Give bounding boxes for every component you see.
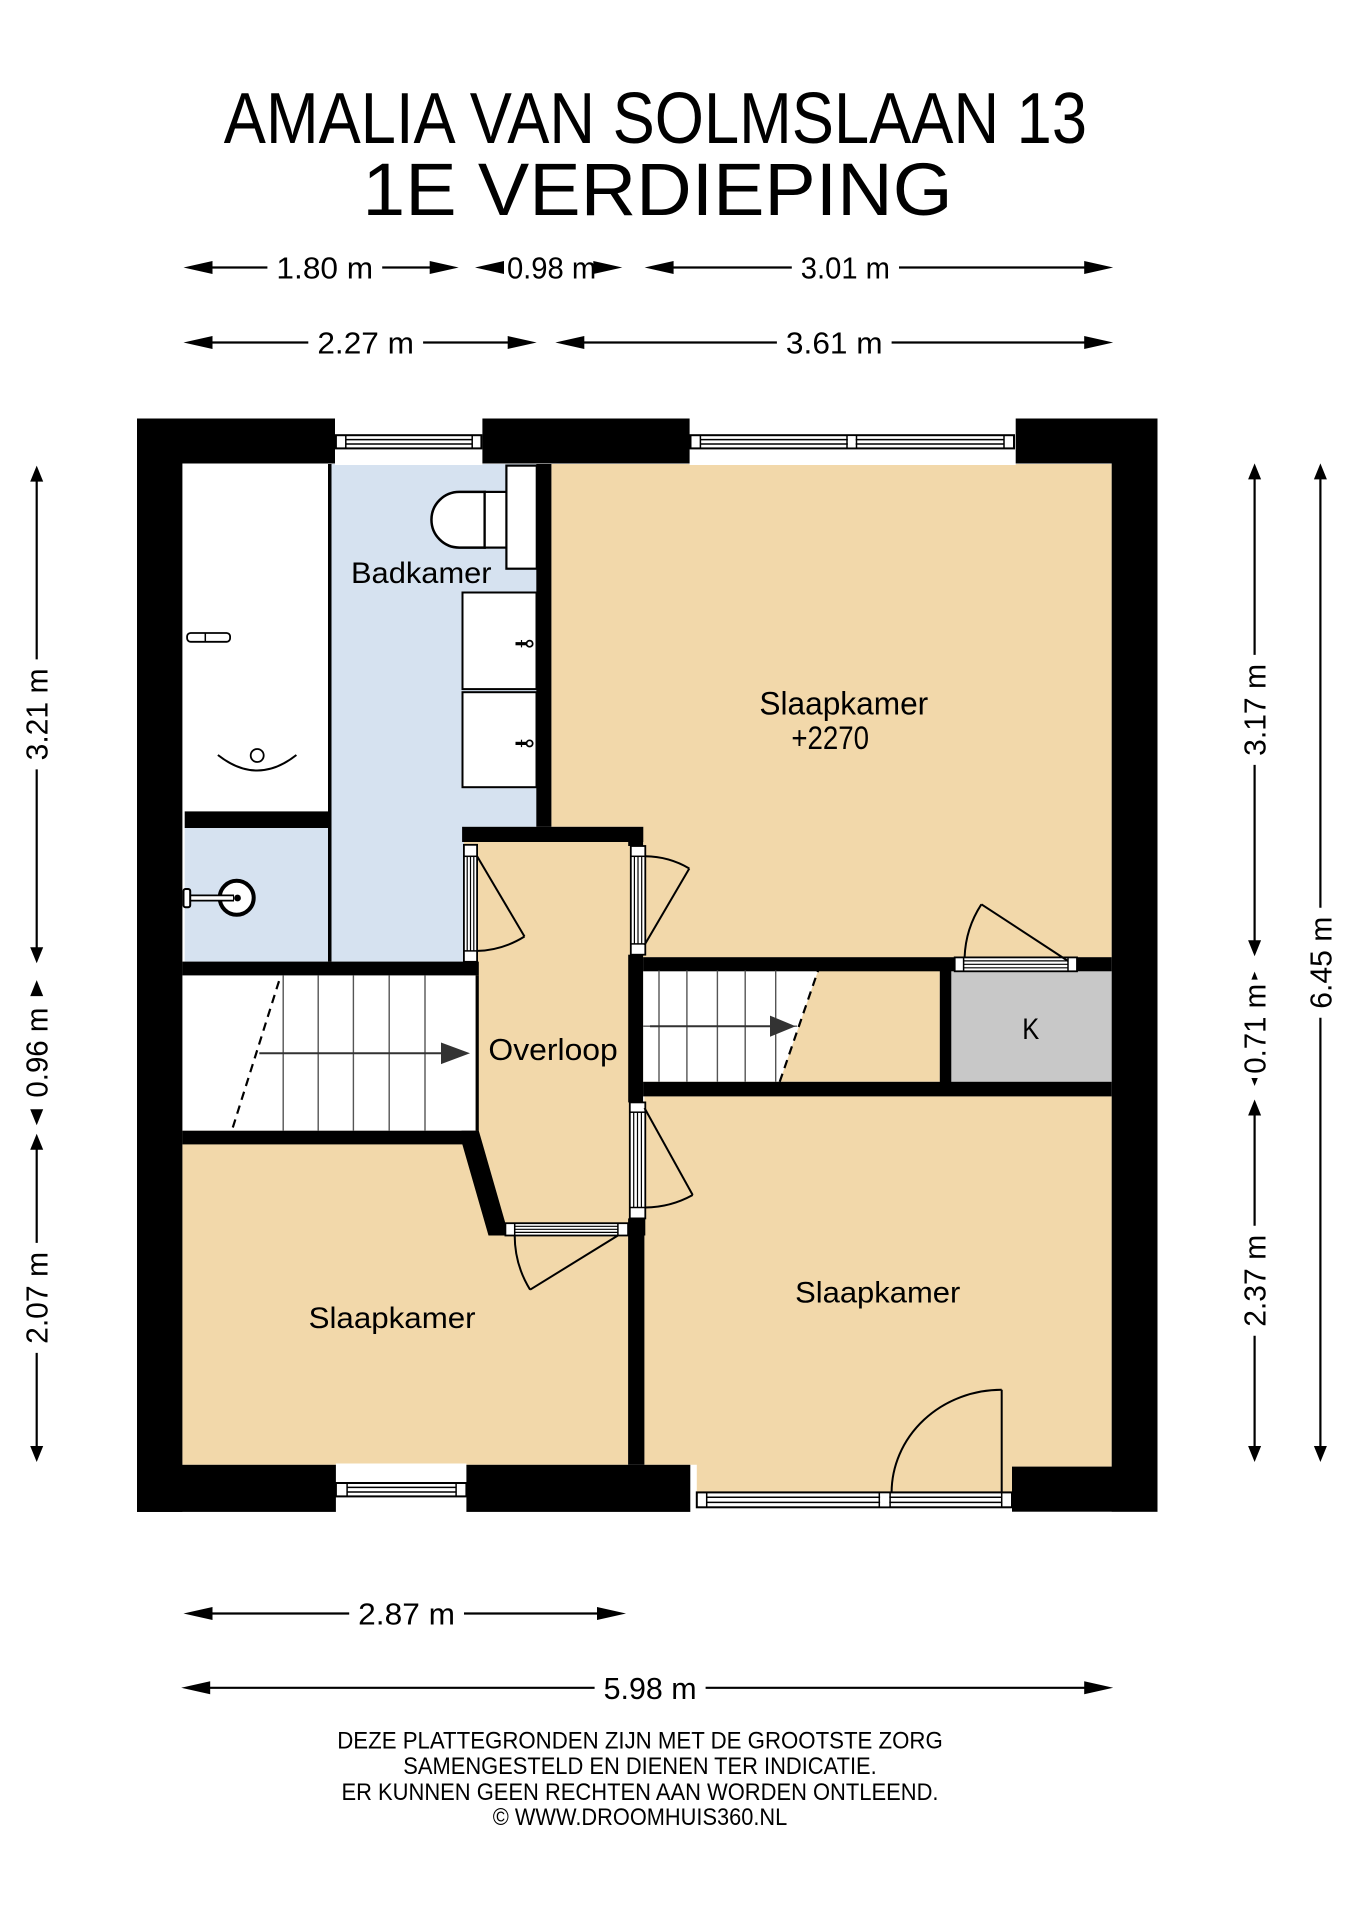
svg-text:0.96 m: 0.96 m <box>20 1008 55 1098</box>
svg-text:2.87 m: 2.87 m <box>358 1597 455 1632</box>
svg-text:3.61 m: 3.61 m <box>786 326 883 361</box>
svg-text:2.37 m: 2.37 m <box>1238 1235 1273 1327</box>
svg-text:3.21 m: 3.21 m <box>20 668 55 760</box>
svg-text:© WWW.DROOMHUIS360.NL: © WWW.DROOMHUIS360.NL <box>493 1804 788 1831</box>
svg-text:AMALIA VAN SOLMSLAAN 13: AMALIA VAN SOLMSLAAN 13 <box>224 79 1087 159</box>
svg-text:0.71 m: 0.71 m <box>1238 984 1273 1074</box>
svg-text:K: K <box>1022 1013 1039 1046</box>
svg-text:Slaapkamer: Slaapkamer <box>795 1277 960 1310</box>
svg-text:ER KUNNEN GEEN RECHTEN AAN WOR: ER KUNNEN GEEN RECHTEN AAN WORDEN ONTLEE… <box>342 1779 939 1806</box>
svg-text:1E VERDIEPING: 1E VERDIEPING <box>362 148 952 231</box>
svg-text:Slaapkamer: Slaapkamer <box>759 686 928 722</box>
svg-text:3.01 m: 3.01 m <box>801 251 890 286</box>
svg-text:Overloop: Overloop <box>488 1032 617 1067</box>
svg-text:3.17 m: 3.17 m <box>1238 664 1273 756</box>
svg-text:Badkamer: Badkamer <box>351 557 492 590</box>
svg-text:6.45 m: 6.45 m <box>1303 917 1338 1009</box>
svg-text:DEZE PLATTEGRONDEN ZIJN MET DE: DEZE PLATTEGRONDEN ZIJN MET DE GROOTSTE … <box>337 1727 943 1754</box>
svg-text:2.07 m: 2.07 m <box>20 1252 55 1344</box>
svg-text:0.98 m: 0.98 m <box>507 251 596 286</box>
svg-text:2.27 m: 2.27 m <box>317 326 414 361</box>
svg-text:1.80 m: 1.80 m <box>276 251 373 286</box>
svg-text:Slaapkamer: Slaapkamer <box>309 1302 476 1335</box>
svg-text:SAMENGESTELD EN DIENEN TER IND: SAMENGESTELD EN DIENEN TER INDICATIE. <box>403 1753 876 1780</box>
svg-text:5.98 m: 5.98 m <box>604 1671 697 1706</box>
svg-text:+2270: +2270 <box>791 720 869 756</box>
